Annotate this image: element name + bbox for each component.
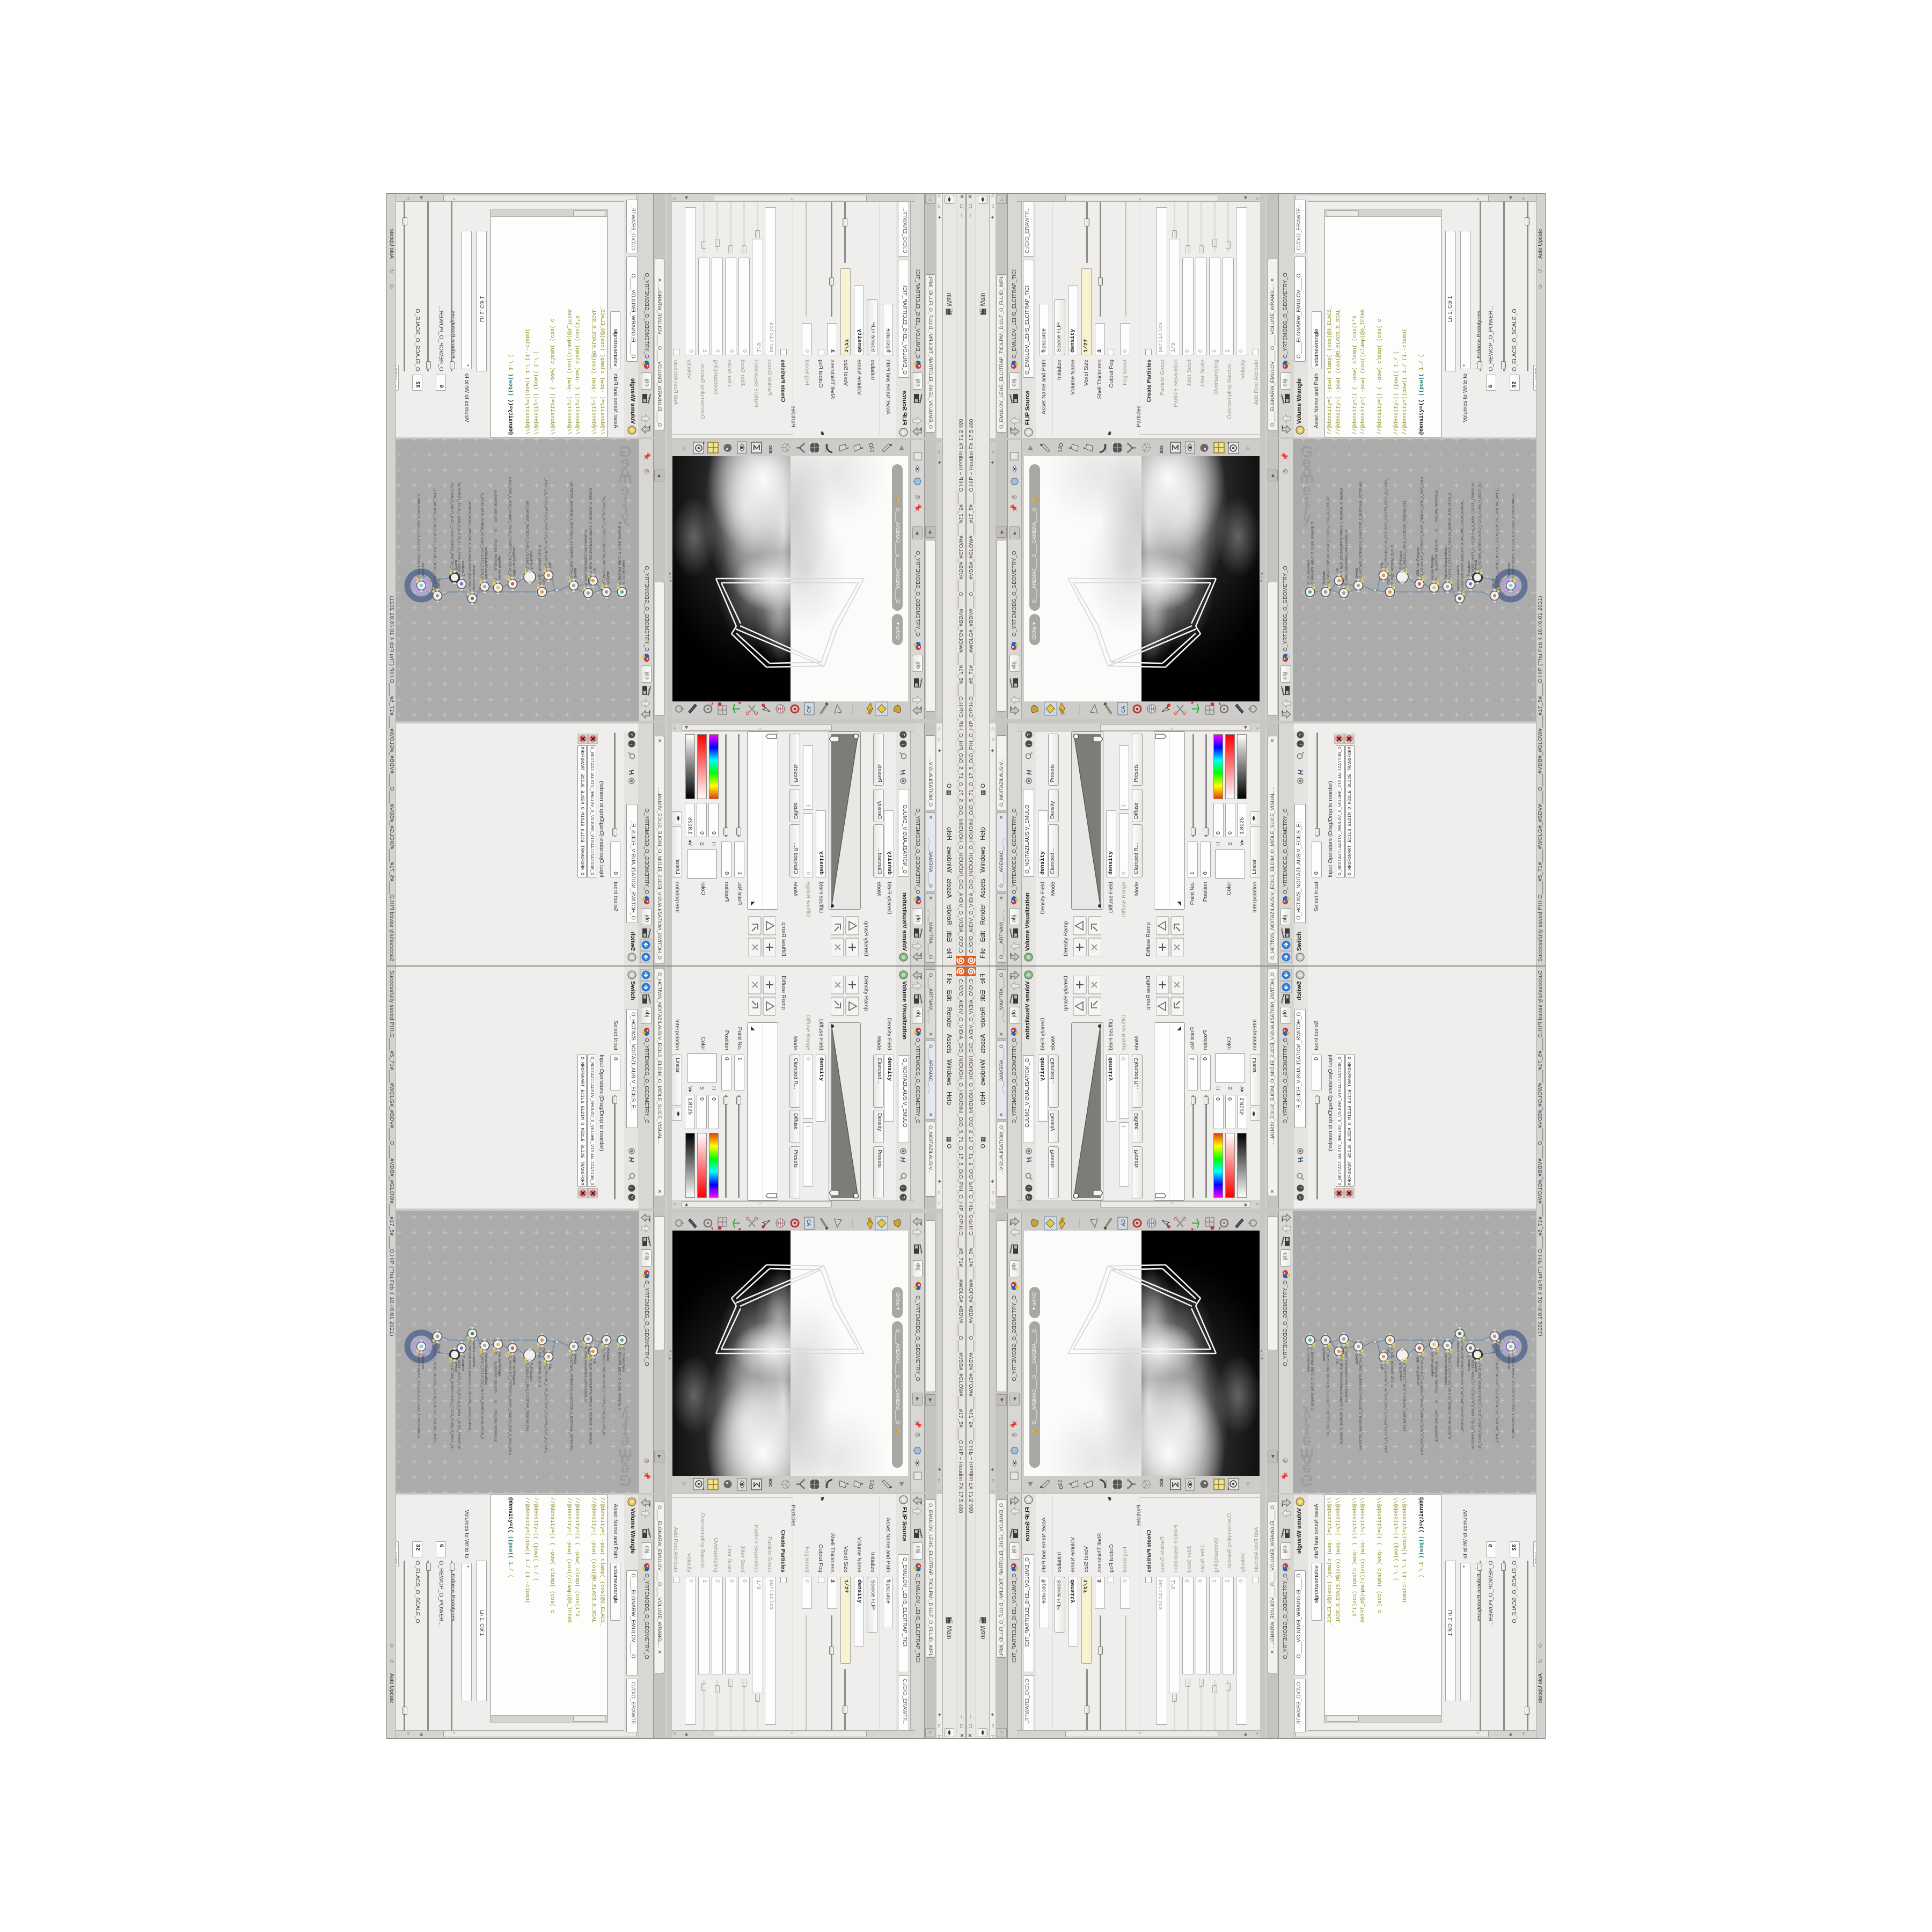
svg-text:abc: abc: [1159, 445, 1164, 453]
svg-text:File: File: [592, 567, 596, 573]
svg-text:O____ELGNARW_EMULOV____O____VO: O____ELGNARW_EMULOV____O____VOLUME_WRANG…: [1436, 483, 1439, 580]
svg-text:H: H: [1025, 1157, 1033, 1162]
svg-text:O_EGRUS_HTIW_EMULOV_EGREM_O_ME: O_EGRUS_HTIW_EMULOV_EGREM_O_MERGE_VOLUME…: [1496, 488, 1499, 588]
svg-text:?: ?: [628, 733, 634, 736]
svg-text:O_EREHPS_EBUC_O_CUBE_SPHERE_O: O_EREHPS_EBUC_O_CUBE_SPHERE_O: [1312, 522, 1315, 584]
svg-text:O_EGRUS_HTIW_EMULOV_EGREM_O_ME: O_EGRUS_HTIW_EMULOV_EGREM_O_MERGE_VOLUME…: [433, 1344, 436, 1444]
svg-text:VDB from Polygons: VDB from Polygons: [512, 547, 516, 576]
svg-text:O_BMALSUGBD/SOLGAN,UBSOB_O: O_BMALSUGBD/SOLGAN,UBSOB_O: [584, 530, 587, 586]
svg-text:O_MROFSNART_TLUSER_O_RESULT_TR: O_MROFSNART_TLUSER_O_RESULT_TRANSFORM_O: [1512, 494, 1516, 578]
svg-text:?: ?: [899, 1196, 905, 1199]
svg-text:H: H: [1297, 770, 1305, 775]
svg-text:?: ?: [1027, 1196, 1033, 1199]
svg-text:O_PILC_RORRIM_CLIP_O: O_PILC_RORRIM_CLIP_O: [1392, 545, 1395, 584]
svg-text:O_HCTIWS_YRTEMOEG_LANRETXE_O_I: O_HCTIWS_YRTEMOEG_LANRETXE_O_INTERNAL_EX…: [569, 1354, 573, 1451]
svg-text:O_HCTIWS_YRTEMOEG_LANRETXE_O_I: O_HCTIWS_YRTEMOEG_LANRETXE_O_INTERNAL_EX…: [1360, 1354, 1363, 1451]
svg-text:Clip: Clip: [1380, 1364, 1384, 1370]
svg-text:O_SNOGILOP_YRTEMOEG_MORF_EMULO: O_SNOGILOP_YRTEMOEG_MORF_EMULOV_BDV_O_VD…: [508, 1356, 511, 1455]
svg-text:i: i: [628, 744, 634, 745]
svg-text:Clip: Clip: [541, 1348, 545, 1353]
svg-text:O_MROFSNART_TLUSER_O_RESULT_TR: O_MROFSNART_TLUSER_O_RESULT_TRANSFORM_O: [417, 494, 420, 578]
svg-text:O_MROFSNART_TLUSER_O_RESULT_TR: O_MROFSNART_TLUSER_O_RESULT_TRANSFORM_O: [417, 1354, 420, 1438]
svg-text:O_SNOGILOP_YRTEMOEG_MORF_EMULO: O_SNOGILOP_YRTEMOEG_MORF_EMULOV_BDV_O_VD…: [508, 477, 511, 576]
svg-text:O_PILC_RORRIM_CLIP_O: O_PILC_RORRIM_CLIP_O: [538, 545, 541, 584]
svg-text:O_EMAGFERIW_NOGYLOP_EREHPS_EBU: O_EMAGFERIW_NOGYLOP_EREHPS_EBUC_O_CUBE_S…: [602, 496, 605, 584]
svg-text:O_EGRUS_HTIW_EMULOV_EGREM_O_ME: O_EGRUS_HTIW_EMULOV_EGREM_O_MERGE_VOLUME…: [1496, 1344, 1499, 1444]
svg-text:●: ●: [1203, 1482, 1207, 1484]
svg-text:VolumeVisualizeSlice: VolumeVisualizeSlice: [1444, 547, 1448, 579]
svg-text:Clip: Clip: [1387, 579, 1391, 584]
svg-text:FLIP Source: FLIP Source: [1399, 1363, 1403, 1381]
svg-text:O_ELIF_BD0.M03,P4TS.T6P0LS_0_5: O_ELIF_BD0.M03,P4TS.T6P0LS_0_5O,R6G1_O_G…: [589, 486, 592, 573]
svg-text:O_EMULOV_LEHS_ELCITRAP_TICILPM: O_EMULOV_LEHS_ELCITRAP_TICILPMI_DIU: [1404, 501, 1407, 569]
svg-text:Switch: Switch: [1474, 1362, 1478, 1372]
svg-text:Clip: Clip: [548, 1364, 552, 1370]
svg-text:Transform: Transform: [1507, 563, 1511, 578]
svg-text:O_NOITAZILAUSIV_EMULOV_O_VOLUM: O_NOITAZILAUSIV_EMULOV_O_VOLUME_VISUALIZ…: [1461, 1341, 1465, 1432]
svg-text:Switch: Switch: [1355, 568, 1359, 578]
svg-text:FLIP Source: FLIP Source: [1399, 551, 1403, 569]
svg-text:an_CubeSphere: an_CubeSphere: [1307, 1348, 1311, 1372]
svg-text:Volume Wrangle: Volume Wrangle: [497, 1352, 501, 1377]
svg-text:Volume Wrangle: Volume Wrangle: [1431, 555, 1435, 580]
svg-text:●: ●: [725, 448, 730, 450]
svg-text:Clip: Clip: [1380, 562, 1384, 568]
svg-text:i: i: [1298, 1187, 1304, 1188]
svg-text:O_EMULOV_LEHS_ELCITRAP_TICILPM: O_EMULOV_LEHS_ELCITRAP_TICILPMI_DIULF_O_…: [1385, 1364, 1388, 1454]
svg-text:O____ELGNARW_EMULOV____O____VO: O____ELGNARW_EMULOV____O____VOLUME_WRANG…: [494, 483, 497, 580]
svg-text:Transform: Transform: [461, 1356, 465, 1371]
svg-text:Clip: Clip: [548, 562, 552, 568]
svg-text:Switch: Switch: [1355, 1354, 1359, 1364]
svg-text:Volume Wrangle: Volume Wrangle: [1431, 1352, 1435, 1377]
svg-text:O_HCTIWS_NOITAZILAUSIV_ECILS_E: O_HCTIWS_NOITAZILAUSIV_ECILS_ELDIM_O_MID…: [1479, 482, 1482, 570]
svg-text:12: 12: [869, 1480, 875, 1486]
svg-text:abc: abc: [768, 1479, 773, 1487]
svg-text:O_ELIF_BD0.M03,P4TS.T6P0LS_0_5: O_ELIF_BD0.M03,P4TS.T6P0LS_0_5O,R6G1_O_G…: [1341, 486, 1344, 573]
svg-text:?: ?: [628, 1196, 634, 1199]
svg-text:H: H: [899, 770, 907, 775]
svg-text:an_CubeSphere: an_CubeSphere: [621, 560, 625, 584]
svg-text:H: H: [1025, 770, 1033, 775]
svg-text:i: i: [900, 744, 905, 745]
svg-text:Merge: Merge: [437, 579, 441, 588]
svg-text:?: ?: [1298, 733, 1304, 736]
svg-text:File: File: [592, 1359, 596, 1365]
svg-text:O_ECILS_EZILAUSIV_EMULOV_NOITA: O_ECILS_EZILAUSIV_EMULOV_NOITAZILAUSILAT…: [480, 1353, 484, 1439]
svg-text:Merge: Merge: [1491, 1344, 1495, 1353]
svg-text:Merge: Merge: [437, 1344, 441, 1353]
svg-text:i: i: [1027, 1187, 1032, 1188]
svg-text:O_HCTIWS_NOITAZILAUSIV_ECILS_E: O_HCTIWS_NOITAZILAUSIV_ECILS_ELDIM_O_MID…: [450, 1362, 453, 1450]
svg-text:O_EMULOV_LEHS_ELCITRAP_TICILPM: O_EMULOV_LEHS_ELCITRAP_TICILPMI_DIU: [525, 1363, 529, 1431]
svg-text:Transform: Transform: [421, 1354, 425, 1369]
svg-text:Clip: Clip: [1387, 1348, 1391, 1353]
svg-text:i: i: [900, 1187, 905, 1188]
svg-text:O_EMULOV_LEHS_ELCITRAP_TICILPM: O_EMULOV_LEHS_ELCITRAP_TICILPMI_DIULF_O_…: [544, 1364, 547, 1454]
svg-text:O_SNOGILOP_YRTEMOEG_MORF_EMULO: O_SNOGILOP_YRTEMOEG_MORF_EMULOV_BDV_O_VD…: [1421, 1356, 1424, 1455]
svg-text:PolyWire: PolyWire: [606, 570, 610, 584]
svg-text:O_ECILS_EZILAUSIV_EMULOV_NOITA: O_ECILS_EZILAUSIV_EMULOV_NOITAZILAUSILAT…: [1449, 1353, 1452, 1439]
svg-text:an_CubeSphere: an_CubeSphere: [1307, 560, 1311, 584]
svg-text:O_NOITAZILAUSIV_EMULOV_O_VOLUM: O_NOITAZILAUSIV_EMULOV_O_VOLUME_VISUALIZ…: [1461, 500, 1465, 591]
svg-text:Switch: Switch: [454, 560, 458, 570]
svg-text:O_HCTIWS_NOITAZILAUSIV_ECILS_E: O_HCTIWS_NOITAZILAUSIV_ECILS_ELDIM_O_MID…: [450, 482, 453, 570]
svg-text:O_ECILS_EZILAUSIV_EMULOV_NOITA: O_ECILS_EZILAUSIV_EMULOV_NOITAZILAUSILAT…: [1449, 493, 1452, 579]
svg-text:abc: abc: [768, 445, 773, 453]
svg-text:?: ?: [899, 733, 905, 736]
svg-text:O_PILC_RORRIM_CLIP_O: O_PILC_RORRIM_CLIP_O: [1392, 1348, 1395, 1387]
svg-text:CA: CA: [806, 1219, 811, 1226]
svg-text:VolumeVisualizeSlice: VolumeVisualizeSlice: [484, 1353, 488, 1385]
svg-text:O_HCTIWS_YRTEMOEG_LANRETXE_O_I: O_HCTIWS_YRTEMOEG_LANRETXE_O_INTERNAL_EX…: [1360, 481, 1363, 578]
svg-text:i: i: [1298, 744, 1304, 745]
svg-text:O_EMAGFERIW_NOGYLOP_EREHPS_EBU: O_EMAGFERIW_NOGYLOP_EREHPS_EBUC_O_CUBE_S…: [602, 1348, 605, 1436]
svg-text:O____ELGNARW_EMULOV____O____VO: O____ELGNARW_EMULOV____O____VOLUME_WRANG…: [1436, 1352, 1439, 1449]
svg-text:VDB from Polygons: VDB from Polygons: [1416, 547, 1420, 576]
svg-text:O_BMALSUGBD/SOLGAN,UBSOB_O: O_BMALSUGBD/SOLGAN,UBSOB_O: [584, 1346, 587, 1402]
svg-text:i: i: [1027, 744, 1032, 745]
svg-text:H: H: [899, 1157, 907, 1162]
svg-text:O_EREHPS_EBUC_O_CUBE_SPHERE_O: O_EREHPS_EBUC_O_CUBE_SPHERE_O: [618, 522, 621, 584]
svg-text:Transform: Transform: [1467, 561, 1471, 576]
svg-text:O_EREHPS_EBUC_O_CUBE_SPHERE_O: O_EREHPS_EBUC_O_CUBE_SPHERE_O: [618, 1348, 621, 1410]
svg-text:Volume Visualiza: Volume Visualiza: [1457, 565, 1460, 591]
svg-text:Transform: Transform: [461, 561, 465, 576]
svg-text:O_EMULOV_LEHS_ELCITRAP_TICILPM: O_EMULOV_LEHS_ELCITRAP_TICILPMI_DIULF_O_…: [544, 478, 547, 568]
svg-text:O_EGRUS_HTIW_EMULOV_EGREM_O_ME: O_EGRUS_HTIW_EMULOV_EGREM_O_MERGE_VOLUME…: [433, 488, 436, 588]
svg-text:Transform: Transform: [1507, 1354, 1511, 1369]
svg-text:O_BMALSUGBD/SOLGAN,UBSOB_O: O_BMALSUGBD/SOLGAN,UBSOB_O: [1345, 530, 1349, 586]
svg-text:CA: CA: [1121, 706, 1126, 713]
svg-text:O_ECILS_EZILAUSIV_EMULOV_NOITA: O_ECILS_EZILAUSIV_EMULOV_NOITAZILAUSILAT…: [480, 493, 484, 579]
svg-text:PolyWire: PolyWire: [1322, 1348, 1326, 1362]
svg-text:Switch0: Switch0: [1341, 1346, 1344, 1359]
svg-text:Transform: Transform: [1467, 1356, 1471, 1371]
svg-text:12: 12: [869, 446, 875, 452]
svg-text:Switch0: Switch0: [1341, 573, 1344, 586]
svg-text:Volume Visualiza: Volume Visualiza: [1457, 1341, 1460, 1367]
svg-text:VDB from Polygons: VDB from Polygons: [1416, 1356, 1420, 1385]
svg-text:O_MROFSNART_TLUSER_O_RESULT_TR: O_MROFSNART_TLUSER_O_RESULT_TRANSFORM_O: [1512, 1354, 1516, 1438]
svg-text:O_NOITAZILAUSIV_EMULOV_O_VOLUM: O_NOITAZILAUSIV_EMULOV_O_VOLUME_VISUALIZ…: [468, 1341, 471, 1432]
svg-text:O_HCTIWS_NOITAZILAUSIV_ECILS_E: O_HCTIWS_NOITAZILAUSIV_ECILS_ELDIM_O_MID…: [1479, 1362, 1482, 1450]
svg-text:Switch: Switch: [454, 1362, 458, 1372]
svg-text:Volume Visualiza: Volume Visualiza: [472, 1341, 475, 1367]
svg-text:Transform: Transform: [421, 563, 425, 578]
svg-text:O_ELIF_BD0.M03,P4TS.T6P0LS_0_5: O_ELIF_BD0.M03,P4TS.T6P0LS_0_5O,R6G1_O_G…: [589, 1359, 592, 1446]
svg-text:H: H: [1297, 1157, 1305, 1162]
svg-text:File: File: [1336, 567, 1340, 573]
svg-text:O_SNOGILOP_YRTEMOEG_MORF_EMULO: O_SNOGILOP_YRTEMOEG_MORF_EMULOV_BDV_O_VD…: [1421, 477, 1424, 576]
svg-text:Volume Visualiza: Volume Visualiza: [472, 565, 475, 591]
svg-text:●: ●: [1203, 448, 1207, 450]
svg-text:an_CubeSphere: an_CubeSphere: [621, 1348, 625, 1372]
svg-text:Switch0: Switch0: [588, 1346, 591, 1359]
svg-text:O_NOITAZILAUSIV_EMULOV_O_VOLUM: O_NOITAZILAUSIV_EMULOV_O_VOLUME_VISUALIZ…: [468, 500, 471, 591]
svg-text:12: 12: [1057, 1480, 1063, 1486]
svg-text:File: File: [1336, 1359, 1340, 1365]
svg-text:i: i: [628, 1187, 634, 1188]
svg-text:Switch: Switch: [1474, 560, 1478, 570]
svg-text:VDB from Polygons: VDB from Polygons: [512, 1356, 516, 1385]
svg-text:O_EREHPS_EBUC_O_CUBE_SPHERE_O: O_EREHPS_EBUC_O_CUBE_SPHERE_O: [1312, 1348, 1315, 1410]
svg-text:O_EMULOV_LEHS_ELCITRAP_TICILPM: O_EMULOV_LEHS_ELCITRAP_TICILPMI_DIU: [1404, 1363, 1407, 1431]
svg-text:Clip: Clip: [541, 579, 545, 584]
svg-text:H: H: [627, 770, 635, 775]
svg-text:?: ?: [1298, 1196, 1304, 1199]
svg-text:abc: abc: [1159, 1479, 1164, 1487]
svg-text:O_EMULOV_LEHS_ELCITRAP_TICILPM: O_EMULOV_LEHS_ELCITRAP_TICILPMI_DIULF_O_…: [1385, 478, 1388, 568]
svg-text:?: ?: [1027, 733, 1033, 736]
svg-text:O_PILC_RORRIM_CLIP_O: O_PILC_RORRIM_CLIP_O: [538, 1348, 541, 1387]
svg-text:O_EMAGFERIW_NOGYLOP_EREHPS_EBU: O_EMAGFERIW_NOGYLOP_EREHPS_EBUC_O_CUBE_S…: [1327, 496, 1330, 584]
svg-text:FLIP Source: FLIP Source: [529, 551, 533, 569]
svg-text:VolumeVisualizeSlice: VolumeVisualizeSlice: [1444, 1353, 1448, 1385]
svg-text:PolyWire: PolyWire: [606, 1348, 610, 1362]
svg-text:O_BMALSUGBD/SOLGAN,UBSOB_O: O_BMALSUGBD/SOLGAN,UBSOB_O: [1345, 1346, 1349, 1402]
svg-text:Switch: Switch: [573, 568, 577, 578]
svg-text:12: 12: [1057, 446, 1063, 452]
svg-text:O_HCTIWS_YRTEMOEG_LANRETXE_O_I: O_HCTIWS_YRTEMOEG_LANRETXE_O_INTERNAL_EX…: [569, 481, 573, 578]
svg-text:O_EMULOV_LEHS_ELCITRAP_TICILPM: O_EMULOV_LEHS_ELCITRAP_TICILPMI_DIU: [525, 501, 529, 569]
svg-text:●: ●: [725, 1482, 730, 1484]
svg-text:O_EMAGFERIW_NOGYLOP_EREHPS_EBU: O_EMAGFERIW_NOGYLOP_EREHPS_EBUC_O_CUBE_S…: [1327, 1348, 1330, 1436]
svg-text:O____ELGNARW_EMULOV____O____VO: O____ELGNARW_EMULOV____O____VOLUME_WRANG…: [494, 1352, 497, 1449]
svg-text:Volume Wrangle: Volume Wrangle: [497, 555, 501, 580]
svg-text:VolumeVisualizeSlice: VolumeVisualizeSlice: [484, 547, 488, 579]
svg-text:FLIP Source: FLIP Source: [529, 1363, 533, 1381]
svg-text:O_ELIF_BD0.M03,P4TS.T6P0LS_0_5: O_ELIF_BD0.M03,P4TS.T6P0LS_0_5O,R6G1_O_G…: [1341, 1359, 1344, 1446]
svg-text:PolyWire: PolyWire: [1322, 570, 1326, 584]
svg-text:CA: CA: [806, 706, 811, 713]
svg-text:Merge: Merge: [1491, 579, 1495, 588]
svg-text:CA: CA: [1121, 1219, 1126, 1226]
svg-text:Switch0: Switch0: [588, 573, 591, 586]
svg-text:Switch: Switch: [573, 1354, 577, 1364]
svg-text:H: H: [627, 1157, 635, 1162]
